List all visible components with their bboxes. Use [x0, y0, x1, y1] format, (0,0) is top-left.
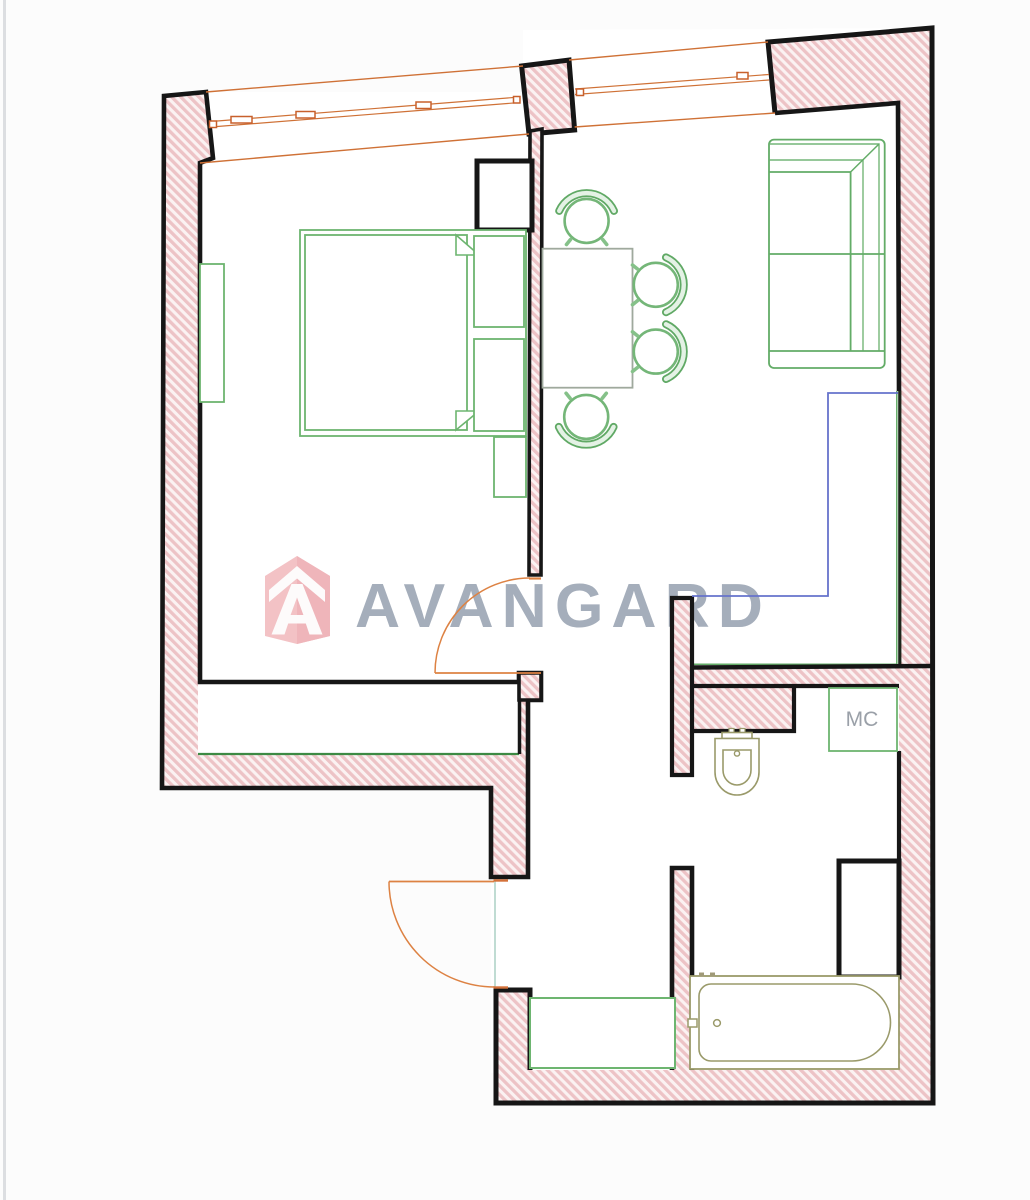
svg-text:MC: MC [846, 708, 879, 731]
svg-text:AVANGARD: AVANGARD [355, 571, 771, 641]
